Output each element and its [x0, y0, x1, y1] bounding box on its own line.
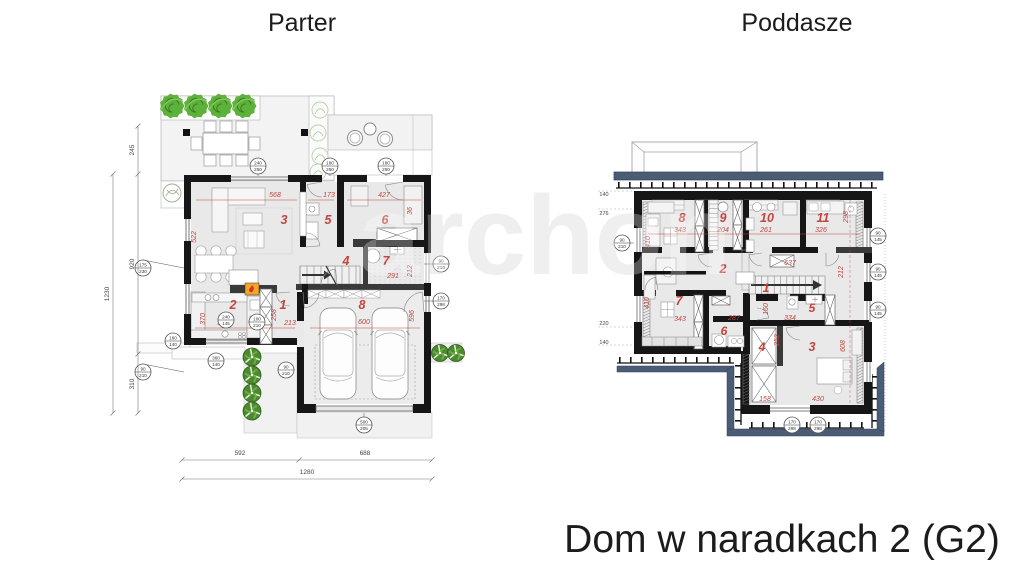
svg-text:360: 360	[212, 356, 220, 361]
svg-text:240: 240	[222, 315, 230, 320]
svg-text:298: 298	[814, 426, 822, 431]
svg-text:592: 592	[235, 450, 246, 457]
svg-text:334: 334	[784, 315, 796, 322]
svg-text:Poddasze: Poddasze	[741, 9, 852, 37]
svg-text:210: 210	[139, 373, 147, 378]
svg-text:90: 90	[283, 365, 289, 370]
svg-text:180: 180	[382, 161, 390, 166]
svg-text:298: 298	[788, 426, 796, 431]
svg-text:205: 205	[360, 426, 368, 431]
svg-text:430: 430	[812, 396, 824, 403]
svg-text:410: 410	[644, 297, 651, 309]
svg-text:370: 370	[200, 313, 207, 325]
svg-text:140: 140	[212, 362, 220, 367]
svg-text:180: 180	[326, 161, 334, 166]
svg-text:258: 258	[271, 309, 278, 322]
svg-text:326: 326	[815, 227, 827, 234]
svg-text:4: 4	[342, 254, 350, 268]
svg-text:310: 310	[129, 378, 136, 389]
svg-text:Dom w naradkach 2 (G2): Dom w naradkach 2 (G2)	[564, 518, 1000, 561]
svg-text:archon: archon	[358, 173, 731, 298]
svg-text:1: 1	[280, 298, 287, 312]
svg-text:3: 3	[809, 340, 816, 354]
svg-text:252: 252	[774, 334, 781, 347]
svg-text:343: 343	[674, 316, 686, 323]
svg-text:100: 100	[253, 317, 261, 322]
svg-text:5: 5	[809, 301, 816, 315]
svg-text:920: 920	[129, 258, 136, 269]
svg-text:298: 298	[437, 302, 445, 307]
svg-text:637: 637	[784, 260, 797, 267]
svg-text:8: 8	[359, 298, 366, 312]
svg-text:2: 2	[229, 298, 237, 312]
svg-text:287: 287	[727, 315, 741, 322]
svg-text:145: 145	[222, 321, 230, 326]
svg-text:688: 688	[360, 450, 371, 457]
svg-text:Parter: Parter	[268, 9, 336, 37]
svg-text:90: 90	[875, 305, 881, 310]
svg-text:90: 90	[140, 367, 146, 372]
svg-text:6: 6	[721, 324, 728, 338]
svg-text:5: 5	[325, 213, 333, 227]
svg-text:160: 160	[763, 303, 770, 315]
svg-text:10: 10	[760, 211, 774, 225]
svg-text:608: 608	[840, 340, 847, 352]
svg-text:261: 261	[759, 227, 772, 234]
svg-text:4: 4	[758, 340, 766, 354]
svg-text:160: 160	[169, 336, 177, 341]
svg-text:596: 596	[409, 310, 416, 322]
svg-text:240: 240	[254, 161, 262, 166]
svg-text:3: 3	[281, 213, 288, 227]
svg-text:250: 250	[382, 167, 390, 172]
svg-text:173: 173	[323, 192, 335, 199]
svg-text:145: 145	[874, 237, 882, 242]
svg-text:210: 210	[253, 323, 261, 328]
svg-text:1230: 1230	[104, 286, 111, 301]
svg-text:170: 170	[788, 420, 796, 425]
svg-text:220: 220	[599, 321, 608, 327]
svg-text:145: 145	[874, 311, 882, 316]
svg-text:158: 158	[759, 396, 771, 403]
svg-text:500: 500	[360, 420, 368, 425]
svg-text:11: 11	[817, 211, 830, 225]
svg-text:568: 568	[269, 192, 281, 199]
svg-text:600: 600	[358, 319, 370, 326]
svg-text:90: 90	[875, 231, 881, 236]
svg-text:213: 213	[283, 320, 296, 327]
svg-text:230: 230	[139, 269, 147, 274]
svg-text:140: 140	[169, 342, 177, 347]
svg-text:522: 522	[191, 231, 198, 243]
svg-text:1280: 1280	[300, 469, 315, 476]
svg-text:250: 250	[254, 167, 262, 172]
svg-text:175: 175	[139, 263, 147, 268]
svg-text:1: 1	[763, 281, 770, 295]
svg-text:145: 145	[874, 273, 882, 278]
svg-text:212: 212	[838, 266, 845, 279]
svg-text:90: 90	[875, 267, 881, 272]
svg-text:245: 245	[129, 144, 136, 155]
svg-text:170: 170	[814, 420, 822, 425]
svg-text:250: 250	[326, 167, 334, 172]
svg-text:210: 210	[282, 371, 290, 376]
svg-text:298: 298	[843, 211, 850, 224]
